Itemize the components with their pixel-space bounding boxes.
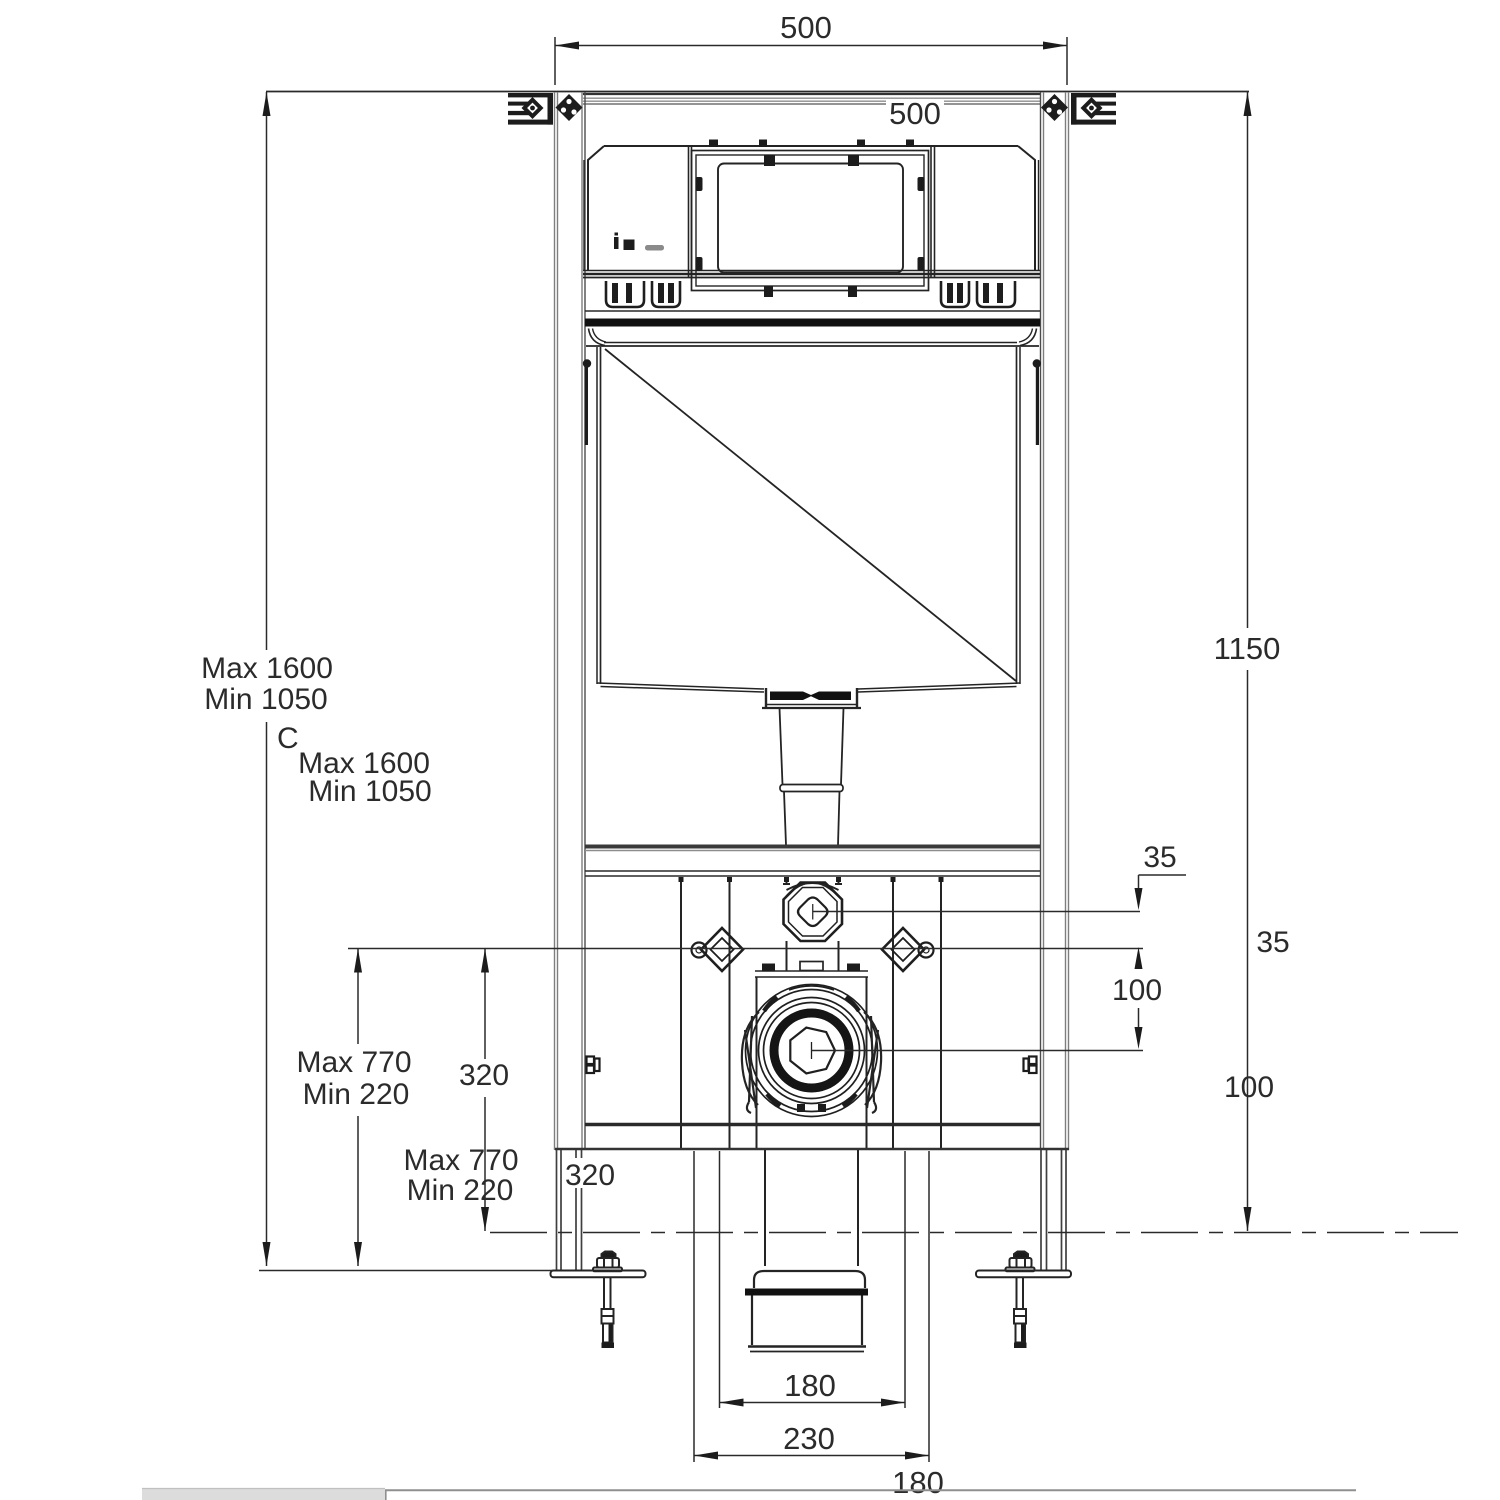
svg-text:180: 180 (784, 1368, 836, 1403)
svg-text:500: 500 (780, 10, 832, 45)
svg-text:100: 100 (1112, 974, 1162, 1007)
svg-text:Min 1050: Min 1050 (308, 775, 431, 808)
svg-text:35: 35 (1143, 841, 1176, 874)
svg-text:100: 100 (1224, 1071, 1274, 1104)
svg-text:500: 500 (889, 96, 941, 131)
svg-text:320: 320 (565, 1159, 615, 1192)
svg-text:180: 180 (892, 1465, 944, 1500)
svg-text:Min 1050: Min 1050 (204, 683, 327, 716)
svg-text:Max 770: Max 770 (403, 1144, 518, 1177)
svg-text:230: 230 (783, 1421, 835, 1456)
svg-text:35: 35 (1256, 926, 1289, 959)
svg-text:1150: 1150 (1214, 631, 1281, 666)
svg-text:Max 1600: Max 1600 (201, 652, 333, 685)
svg-text:Max 770: Max 770 (296, 1046, 411, 1079)
svg-text:C: C (277, 722, 299, 755)
svg-text:Min 220: Min 220 (303, 1078, 410, 1111)
svg-text:Min 220: Min 220 (407, 1174, 514, 1207)
svg-text:320: 320 (459, 1059, 509, 1092)
